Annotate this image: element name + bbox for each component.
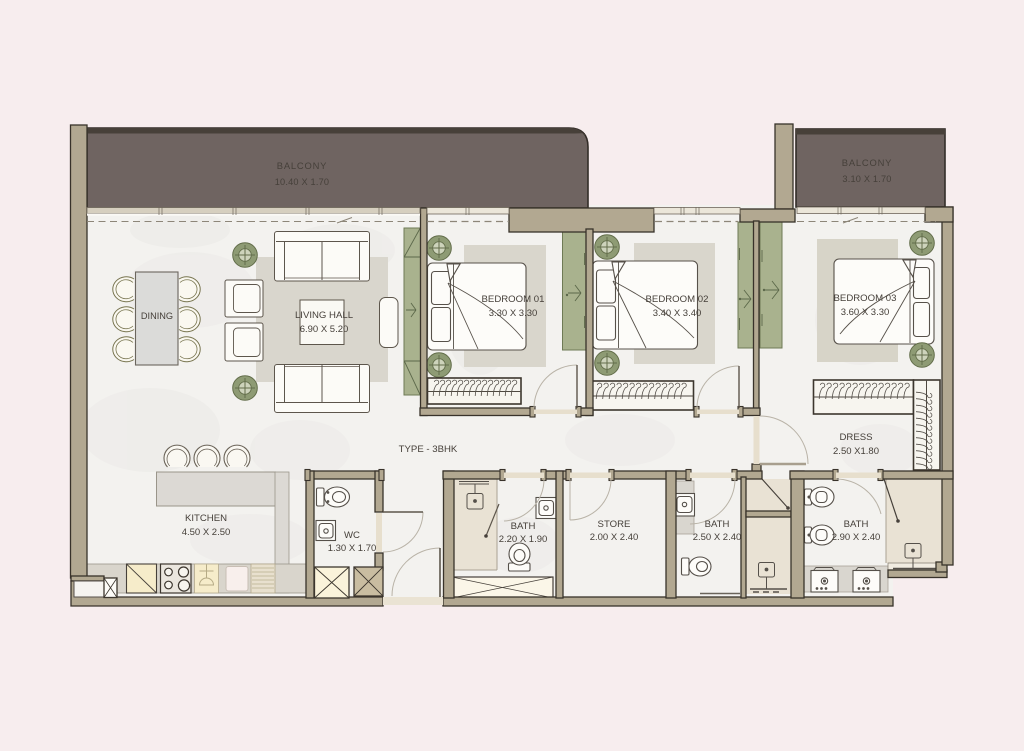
svg-text:DINING: DINING [141,311,173,321]
svg-text:TYPE - 3BHK: TYPE - 3BHK [399,444,458,455]
svg-text:BALCONY: BALCONY [277,160,327,171]
svg-text:BATH: BATH [844,519,869,530]
svg-text:BEDROOM 02: BEDROOM 02 [646,294,709,305]
svg-text:BEDROOM 03: BEDROOM 03 [834,293,897,304]
svg-text:2.20 X 1.90: 2.20 X 1.90 [499,534,548,545]
svg-text:BEDROOM 01: BEDROOM 01 [482,294,545,305]
svg-text:BATH: BATH [705,519,730,530]
svg-text:2.50 X 2.40: 2.50 X 2.40 [693,532,742,543]
svg-text:4.50 X 2.50: 4.50 X 2.50 [182,527,231,538]
svg-text:3.30 X 3.30: 3.30 X 3.30 [489,308,538,319]
svg-text:LIVING HALL: LIVING HALL [295,310,354,321]
svg-text:3.10 X 1.70: 3.10 X 1.70 [842,174,891,184]
svg-text:WC: WC [344,530,360,541]
svg-text:6.90 X 5.20: 6.90 X 5.20 [300,324,349,335]
svg-text:DRESS: DRESS [839,432,872,443]
svg-text:BALCONY: BALCONY [842,157,892,168]
svg-text:KITCHEN: KITCHEN [185,513,227,524]
svg-text:3.40 X 3.40: 3.40 X 3.40 [653,308,702,319]
svg-text:10.40 X 1.70: 10.40 X 1.70 [275,177,330,187]
svg-text:BATH: BATH [511,521,536,532]
svg-text:3.60 X 3.30: 3.60 X 3.30 [841,307,890,318]
svg-text:2.90 X 2.40: 2.90 X 2.40 [832,532,881,543]
svg-text:2.50 X1.80: 2.50 X1.80 [833,446,879,457]
svg-text:1.30 X 1.70: 1.30 X 1.70 [328,543,377,554]
svg-text:2.00 X 2.40: 2.00 X 2.40 [590,532,639,543]
svg-text:STORE: STORE [598,519,631,530]
